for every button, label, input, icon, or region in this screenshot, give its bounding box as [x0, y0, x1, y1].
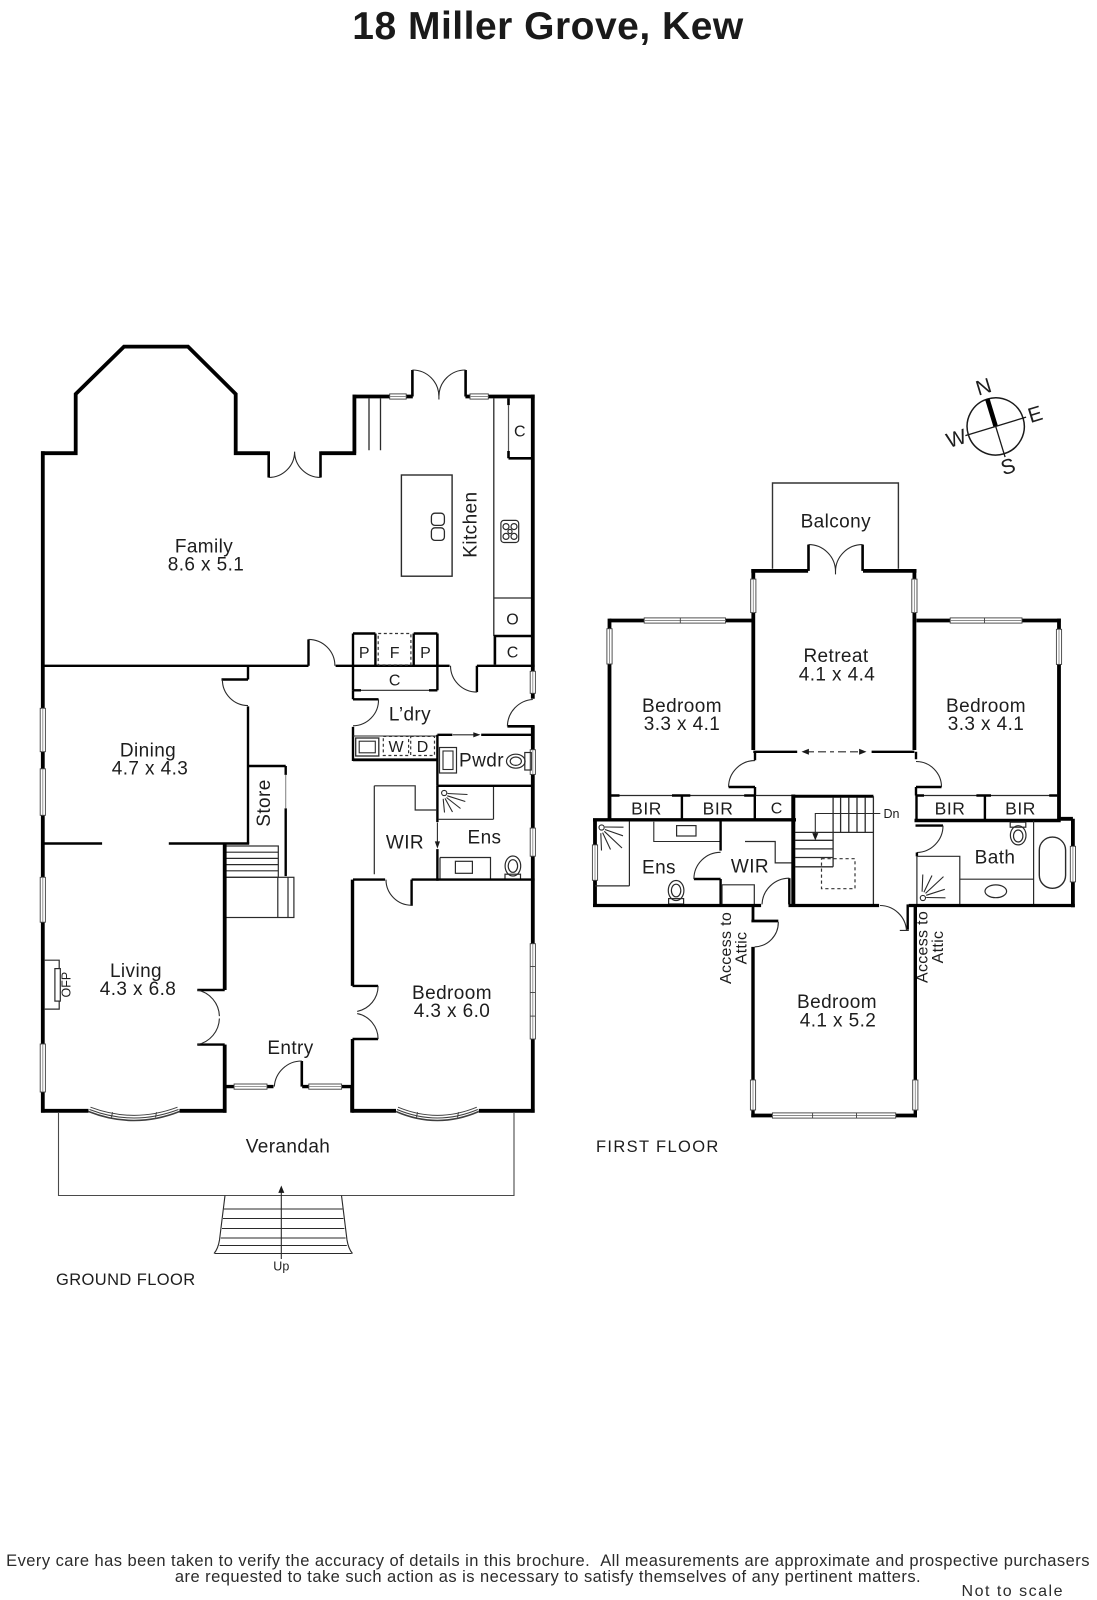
svg-text:Bath: Bath: [975, 848, 1016, 869]
svg-text:L’dry: L’dry: [389, 705, 431, 726]
svg-text:P: P: [420, 645, 431, 662]
svg-text:8.6 x 5.1: 8.6 x 5.1: [168, 555, 244, 576]
svg-text:4.3 x 6.8: 4.3 x 6.8: [100, 979, 176, 1000]
svg-text:O: O: [506, 612, 518, 629]
svg-text:Entry: Entry: [267, 1038, 313, 1059]
svg-text:P: P: [359, 645, 370, 662]
svg-text:D: D: [417, 739, 429, 756]
svg-text:Ens: Ens: [642, 858, 676, 879]
svg-text:BIR: BIR: [935, 799, 966, 819]
svg-text:Pwdr: Pwdr: [459, 751, 504, 772]
svg-text:C: C: [389, 673, 401, 690]
svg-text:WIR: WIR: [731, 857, 769, 878]
svg-text:4.1 x 4.4: 4.1 x 4.4: [799, 665, 876, 686]
svg-text:BIR: BIR: [1005, 799, 1036, 819]
svg-text:Verandah: Verandah: [246, 1137, 331, 1158]
svg-text:Balcony: Balcony: [801, 512, 871, 533]
svg-text:Attic: Attic: [930, 931, 947, 964]
svg-text:Access to: Access to: [915, 911, 932, 983]
svg-text:Store: Store: [254, 779, 275, 826]
svg-text:C: C: [771, 801, 783, 818]
svg-text:OFP: OFP: [60, 972, 74, 998]
svg-text:C: C: [507, 645, 519, 662]
svg-text:BIR: BIR: [703, 799, 734, 819]
svg-text:3.3 x 4.1: 3.3 x 4.1: [644, 714, 720, 735]
svg-text:Ens: Ens: [468, 828, 502, 849]
svg-text:GROUND FLOOR: GROUND FLOOR: [56, 1271, 196, 1289]
svg-text:W: W: [388, 739, 404, 756]
svg-text:4.7 x 4.3: 4.7 x 4.3: [112, 759, 188, 780]
svg-text:Access to: Access to: [718, 912, 735, 984]
svg-text:BIR: BIR: [631, 799, 662, 819]
svg-text:WIR: WIR: [386, 833, 424, 854]
svg-text:Not to scale: Not to scale: [962, 1583, 1064, 1600]
svg-text:4.3 x 6.0: 4.3 x 6.0: [414, 1001, 490, 1022]
svg-text:C: C: [514, 424, 526, 441]
svg-text:Attic: Attic: [734, 932, 751, 965]
svg-text:4.1 x 5.2: 4.1 x 5.2: [800, 1011, 876, 1032]
svg-text:F: F: [390, 645, 400, 662]
svg-text:Up: Up: [273, 1260, 289, 1274]
svg-text:FIRST FLOOR: FIRST FLOOR: [596, 1138, 720, 1156]
svg-text:Dn: Dn: [884, 807, 900, 821]
svg-text:3.3 x 4.1: 3.3 x 4.1: [948, 714, 1024, 735]
svg-text:are requested to take such act: are requested to take such action as is …: [175, 1568, 921, 1586]
svg-text:18 Miller Grove, Kew: 18 Miller Grove, Kew: [352, 5, 744, 48]
svg-text:Kitchen: Kitchen: [461, 492, 482, 558]
